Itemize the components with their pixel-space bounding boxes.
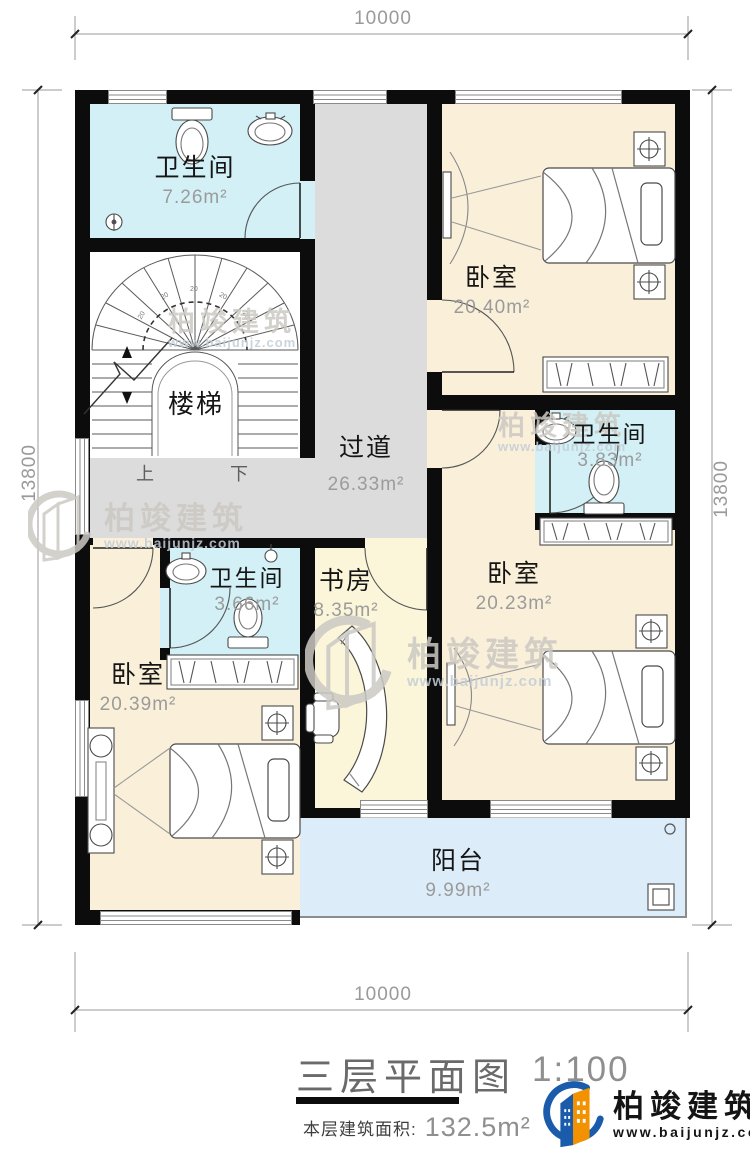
label-bedroom-right: 卧室 20.23m² [476, 554, 553, 615]
label-bedroom-top-right: 卧室 20.40m² [454, 258, 531, 319]
bed-right [543, 651, 675, 744]
room-name: 卧室 [487, 554, 541, 590]
bed-bottom-left [170, 744, 300, 838]
dresser-bottom-left [88, 728, 170, 853]
label-bathroom-right: 卫生间 3.83m² [573, 415, 648, 472]
room-area: 20.39m² [100, 694, 177, 716]
balcony-drain [648, 824, 675, 910]
sink-bathroom-middle [166, 553, 206, 584]
brand-url: www.baijunjz.com [613, 1124, 750, 1140]
stair-tread-mark: 20 [190, 286, 198, 293]
room-name: 卧室 [111, 655, 165, 691]
floor-area-value: 132.5m² [425, 1112, 531, 1143]
wardrobe-bottom-left [167, 655, 298, 689]
chair [306, 693, 339, 743]
room-name: 过道 [339, 428, 393, 464]
label-study: 书房 8.35m² [313, 561, 378, 622]
room-area: 20.40m² [454, 297, 531, 319]
room-name: 书房 [319, 561, 373, 597]
room-area: 3.83m² [577, 450, 642, 472]
label-bedroom-bottom-left: 卧室 20.39m² [100, 655, 177, 716]
label-balcony: 阳台 9.99m² [425, 841, 490, 902]
label-corridor: 过道 26.33m² [328, 428, 405, 496]
tv-right [447, 648, 541, 746]
stairs-up-label: 上 [136, 460, 154, 486]
bed-top-right [543, 168, 675, 263]
wardrobe-right [540, 518, 672, 545]
room-name: 卫生间 [154, 148, 235, 184]
room-name: 卫生间 [573, 415, 648, 449]
sink-bathroom-right [536, 413, 576, 444]
sink-top-left [248, 113, 292, 145]
room-area: 3.66m² [214, 594, 279, 616]
room-area: 7.26m² [162, 187, 227, 209]
desk [338, 626, 387, 792]
plan-title: 三层平面图 [296, 1046, 516, 1101]
room-name: 卧室 [465, 258, 519, 294]
brand-name: 柏竣建筑 [613, 1090, 750, 1124]
label-bathroom-top-left: 卫生间 7.26m² [154, 148, 235, 209]
room-name: 阳台 [431, 841, 485, 877]
tv-top-right [443, 152, 541, 264]
label-bathroom-middle-left: 卫生间 3.66m² [210, 559, 285, 616]
room-name: 卫生间 [210, 559, 285, 593]
brand-logo: 柏竣建筑 www.baijunjz.com [543, 1080, 750, 1150]
floor-plan-page: 20 20 20 20 20 卫生间 7.26m² 卧室 20.40m² 过道 … [0, 0, 750, 1160]
floor-area-label: 本层建筑面积: [303, 1115, 417, 1140]
room-area: 20.23m² [476, 593, 553, 615]
shower-drain-icon [106, 214, 122, 231]
stairs-down-label: 下 [230, 460, 248, 486]
brand-logo-icon [543, 1080, 605, 1150]
floor-area-block: 本层建筑面积: 132.5m² [303, 1112, 531, 1143]
room-area: 8.35m² [313, 600, 378, 622]
wardrobe-top-right [543, 357, 668, 392]
label-stairs: 楼梯 [168, 384, 224, 421]
title-underline [296, 1097, 459, 1104]
room-area: 26.33m² [328, 474, 405, 496]
room-area: 9.99m² [425, 880, 490, 902]
